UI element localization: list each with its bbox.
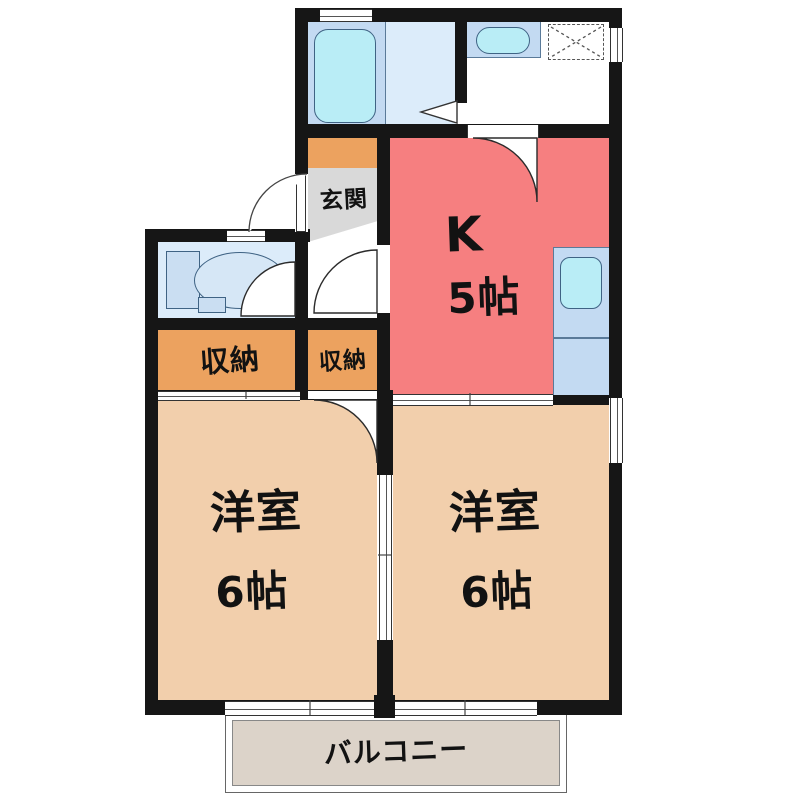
- balcony-label: バルコニー: [323, 735, 468, 768]
- door-arc: [473, 138, 537, 202]
- door-arc: [241, 262, 295, 316]
- door-arc: [314, 400, 377, 463]
- plan-detail-layer: [0, 0, 800, 800]
- bedroom-right-size-label: 6帖: [460, 570, 535, 615]
- washer-cross-icon: [551, 27, 601, 57]
- sliding-ticks: [246, 392, 470, 715]
- kitchen-size-label: 5帖: [447, 276, 522, 321]
- closet-right-label: 収納: [318, 349, 367, 375]
- kitchen-label: K: [444, 210, 484, 259]
- bedroom-left-size-label: 6帖: [215, 570, 290, 615]
- entrance-label: 玄関: [319, 188, 368, 213]
- closet-left-label: 収納: [199, 344, 261, 377]
- bedroom-right-label: 洋室: [448, 488, 542, 536]
- door-arc: [314, 250, 377, 313]
- floor-plan: 玄関 K 5帖 収納 収納 洋室 6帖 洋室 6帖 バルコニー: [0, 0, 800, 800]
- bedroom-left-label: 洋室: [209, 488, 303, 536]
- folding-door-icon: [421, 101, 457, 123]
- front-door-arc: [249, 174, 307, 232]
